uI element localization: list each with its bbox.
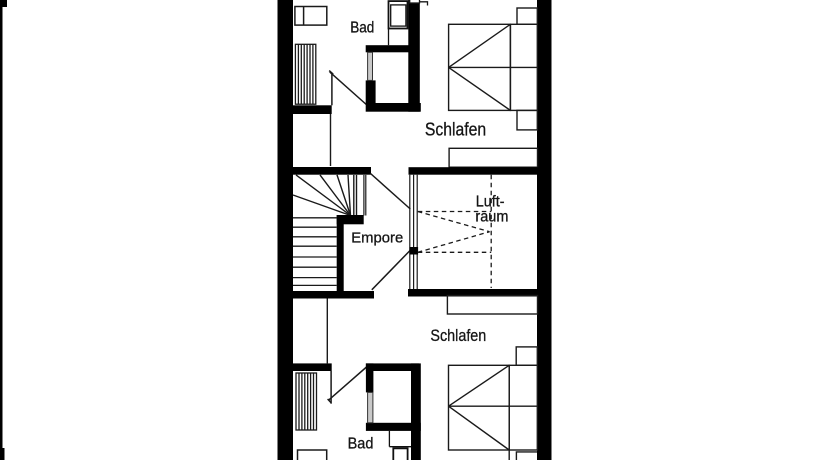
svg-text:Bad: Bad (348, 436, 374, 453)
svg-text:Schlafen: Schlafen (425, 119, 486, 140)
svg-text:Empore: Empore (351, 231, 403, 247)
svg-text:Schlafen: Schlafen (430, 326, 486, 345)
svg-text:Bad: Bad (350, 20, 374, 37)
svg-text:raum: raum (475, 209, 508, 226)
